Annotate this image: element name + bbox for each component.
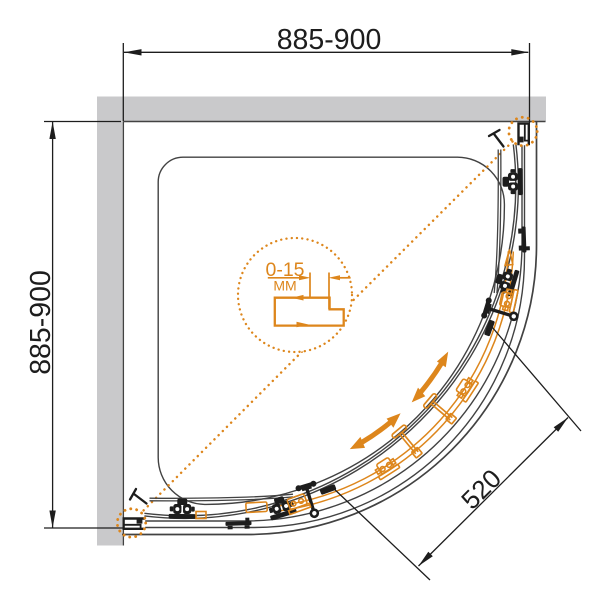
svg-text:885-900: 885-900 bbox=[277, 24, 382, 56]
svg-text:885-900: 885-900 bbox=[25, 270, 57, 375]
svg-text:520: 520 bbox=[455, 463, 507, 515]
svg-text:MM: MM bbox=[273, 278, 296, 294]
